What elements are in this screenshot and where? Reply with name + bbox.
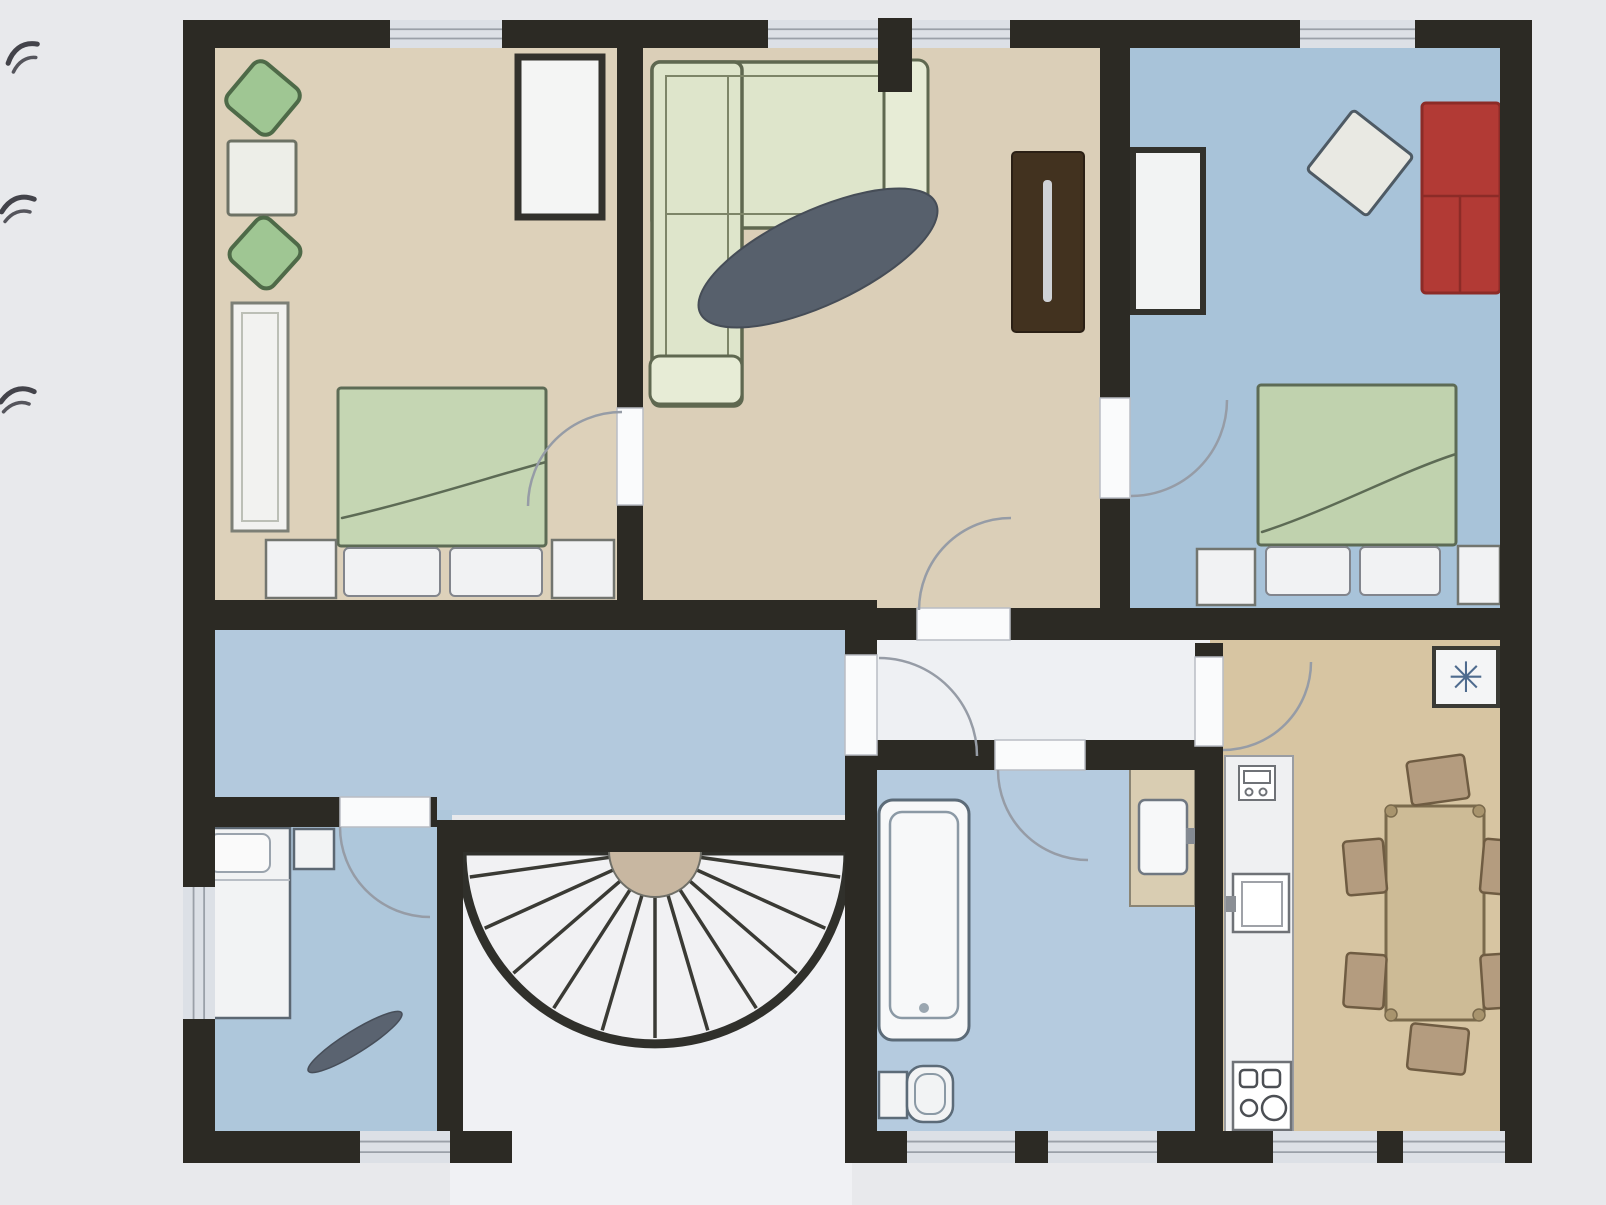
door-opening-bathroom xyxy=(995,740,1085,770)
door-opening-kitchen xyxy=(1195,657,1223,746)
door-opening-bedroom1 xyxy=(617,408,643,505)
bedroom1-nightstand-right xyxy=(552,540,614,598)
bedroom1-pillow-left xyxy=(344,548,440,596)
wall-living-bedroom2-lower xyxy=(1100,498,1130,613)
window-bathroom-1 xyxy=(907,1131,1015,1163)
wall-living-bedroom2-upper xyxy=(1100,48,1130,398)
wall-corridor-kitchen-stub xyxy=(1195,643,1223,657)
wall-hall-corridor-lower xyxy=(845,755,877,1163)
wall-stairs-left xyxy=(437,852,463,1163)
wall-bottom-left-1 xyxy=(183,1131,360,1163)
window-bathroom-2 xyxy=(1048,1131,1157,1163)
dining-table xyxy=(1386,806,1484,1020)
bathroom-vanity-faucet xyxy=(1186,828,1195,844)
window-left-smallbedroom xyxy=(183,887,215,1019)
door-opening-bedroom2 xyxy=(1100,398,1130,498)
window-top-bedroom1 xyxy=(390,20,502,48)
dining-chair-left-1 xyxy=(1343,838,1388,895)
door-opening-small-bedroom xyxy=(340,797,430,827)
window-kitchen-1 xyxy=(1273,1131,1377,1163)
floor-plan-page: ✳ xyxy=(0,0,1606,1205)
kitchen-sink-faucet xyxy=(1226,896,1236,912)
hallway-floor xyxy=(200,615,860,815)
wall-bath-bottom-1 xyxy=(845,1131,907,1163)
window-bottom-smallbedroom xyxy=(360,1131,450,1163)
bedroom1-side-table xyxy=(228,141,296,215)
wall-smallbed-top-1 xyxy=(183,797,340,827)
floor-plan-svg: ✳ xyxy=(0,0,1606,1205)
dining-chair-top xyxy=(1406,754,1470,806)
window-top-living-2 xyxy=(912,20,1010,48)
bedroom1-pillow-right xyxy=(450,548,542,596)
wall-bath-kitchen xyxy=(1195,746,1223,1163)
living-sofa-armrest-bottom xyxy=(650,356,742,404)
small-bedroom-nightstand xyxy=(294,829,334,869)
wall-mid-left xyxy=(183,600,845,630)
dining-table-corner-4 xyxy=(1473,1009,1485,1021)
wall-top-2 xyxy=(502,20,768,48)
small-bedroom-pillow xyxy=(210,834,270,872)
bedroom2-pillow-right xyxy=(1360,547,1440,595)
bedroom1-wardrobe xyxy=(518,57,602,217)
wall-bedroom1-living-upper xyxy=(617,48,643,408)
bedroom1-shelf xyxy=(232,303,288,531)
toilet-tank xyxy=(879,1072,907,1118)
dining-chair-left-2 xyxy=(1343,953,1387,1010)
bedroom2-wardrobe xyxy=(1133,150,1203,312)
bedroom1-bed-duvet xyxy=(338,388,546,546)
wall-top-pillar xyxy=(878,18,912,92)
wall-right xyxy=(1500,20,1532,1163)
bedroom2-pillow-left xyxy=(1266,547,1350,595)
wall-mid-right-1 xyxy=(877,608,917,640)
wall-kitchen-bottom-corner xyxy=(1505,1131,1532,1163)
dining-chair-bottom xyxy=(1407,1023,1469,1075)
kitchen-freezer-snowflake-icon: ✳ xyxy=(1448,654,1483,701)
window-top-living-1 xyxy=(768,20,878,48)
wall-top-3 xyxy=(1010,20,1300,48)
door-opening-living xyxy=(917,608,1010,640)
wall-bottom-left-2 xyxy=(450,1131,512,1163)
living-sideboard-handle xyxy=(1043,180,1052,302)
wall-bath-bottom-2 xyxy=(1015,1131,1048,1163)
dining-table-corner-2 xyxy=(1473,805,1485,817)
bathtub-drain xyxy=(919,1003,929,1013)
dining-table-corner-3 xyxy=(1385,1009,1397,1021)
bedroom2-nightstand-left xyxy=(1197,549,1255,605)
window-top-bedroom2 xyxy=(1300,20,1415,48)
door-opening-hallway xyxy=(845,655,877,755)
wall-bedroom1-living-lower xyxy=(617,505,643,608)
wall-kitchen-bottom-2 xyxy=(1377,1131,1403,1163)
window-kitchen-2 xyxy=(1403,1131,1505,1163)
wall-mid-right-2 xyxy=(1010,608,1500,640)
wall-left-upper xyxy=(183,20,215,887)
dining-table-corner-1 xyxy=(1385,805,1397,817)
wall-corridor-bath-2 xyxy=(1085,740,1195,770)
corridor-floor xyxy=(860,624,1210,754)
wall-kitchen-bottom-1 xyxy=(1157,1131,1273,1163)
bathroom-vanity-sink xyxy=(1139,800,1187,874)
wall-stairs-top xyxy=(437,820,877,852)
bedroom2-nightstand-right xyxy=(1458,546,1500,604)
wall-hall-corridor-upper xyxy=(845,600,877,655)
bedroom1-nightstand-left xyxy=(266,540,336,598)
